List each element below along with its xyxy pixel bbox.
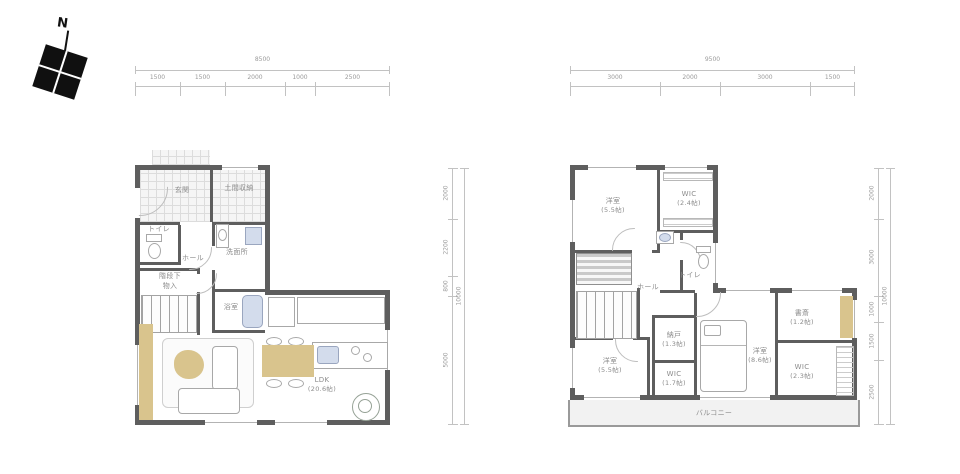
room-label-line: 物入 (159, 281, 181, 291)
tick (874, 168, 884, 169)
tick (874, 360, 884, 361)
dim-seg: 1000 (285, 74, 315, 81)
wall (215, 289, 265, 292)
dining-chair (266, 379, 282, 388)
toilet-tank (146, 234, 162, 242)
room-label-bedroom-nw: 洋室 (5.5帖) (601, 196, 625, 216)
kitchen-back-counter (297, 297, 385, 324)
wall (265, 290, 390, 295)
dim-seg: 1500 (180, 74, 225, 81)
wall (647, 340, 650, 395)
room-label-storage: 納戸 (1.3帖) (662, 330, 686, 350)
sofa (178, 388, 240, 414)
room-size: (8.6帖) (748, 356, 772, 365)
room-size: (2.3帖) (790, 372, 814, 381)
tick (570, 66, 571, 74)
door-opening (632, 250, 652, 253)
wall (178, 225, 181, 265)
dim-total: 10000 (882, 286, 889, 305)
wic-shelf (663, 172, 713, 181)
window (205, 420, 257, 425)
room-label-toilet: トイレ (679, 270, 701, 280)
tick (874, 219, 884, 220)
sofa (212, 346, 238, 390)
room-label-washroom: 洗面所 (226, 247, 248, 257)
dim-seg: 3000 (570, 74, 660, 81)
dim-seg: 1500 (869, 333, 876, 348)
wall (212, 330, 265, 333)
tick (874, 322, 884, 323)
dim-seg: 3000 (720, 74, 810, 81)
tick (285, 82, 286, 96)
room-label-genkan: 玄関 (175, 185, 190, 195)
wall (140, 262, 181, 265)
refrigerator (268, 297, 295, 327)
wall (652, 360, 697, 363)
room-size: (5.5帖) (598, 366, 622, 375)
toilet-bowl (698, 254, 709, 269)
dim-total: 9500 (570, 56, 855, 63)
toilet-bowl (148, 243, 161, 259)
dim-seg: 2000 (869, 185, 876, 200)
room-label-toilet: トイレ (148, 224, 170, 234)
compass-rose-icon (32, 44, 87, 99)
room-size: (2.4帖) (677, 199, 701, 208)
room-size: (1.7帖) (662, 379, 686, 388)
dim-line (464, 168, 465, 425)
room-size: (1.2帖) (790, 318, 814, 327)
dim-seg: 2000 (225, 74, 285, 81)
dim-seg: 2000 (443, 185, 450, 200)
tick (886, 424, 895, 425)
dining-table (262, 345, 314, 377)
room-label-line: WIC (677, 189, 701, 199)
window (570, 200, 575, 242)
tick (225, 82, 226, 96)
dim-seg: 1000 (869, 301, 876, 316)
window (713, 243, 718, 283)
wall (778, 340, 857, 343)
tick (460, 424, 469, 425)
tick (460, 168, 469, 169)
dim-line (570, 86, 855, 87)
dim-seg: 1500 (135, 74, 180, 81)
tick (874, 424, 884, 425)
dim-seg: 800 (443, 280, 450, 291)
wall (637, 288, 640, 340)
room-label-ldk: LDK (20.6帖) (308, 375, 336, 395)
room-label-wic-s: WIC (1.7帖) (662, 369, 686, 389)
dim-line (135, 86, 390, 87)
tick (448, 276, 458, 277)
coffee-table (174, 350, 204, 379)
room-label-doma-storage: 土間収納 (224, 183, 253, 193)
room-label-line: 書斎 (790, 308, 814, 318)
room-label-line: WIC (790, 362, 814, 372)
room-size: (5.5帖) (601, 206, 625, 215)
tick (854, 66, 855, 74)
room-label-line: 洋室 (598, 356, 622, 366)
room-label-hall: ホール (182, 253, 204, 263)
room-label-line: 階段下 (159, 271, 181, 281)
window (275, 420, 327, 425)
tick (389, 82, 390, 96)
tick (448, 168, 458, 169)
room-label-wic-e: WIC (2.3帖) (790, 362, 814, 382)
room-label-bedroom-se: 洋室 (8.6帖) (748, 346, 772, 366)
tick (660, 82, 661, 96)
wall (265, 165, 270, 295)
dining-chair (288, 379, 304, 388)
window (665, 165, 707, 170)
kitchen-sink (317, 346, 339, 364)
bathtub (242, 295, 263, 328)
vanity-basin (218, 229, 227, 241)
study-desk (840, 296, 853, 338)
window (588, 165, 636, 170)
room-size: (20.6帖) (308, 385, 336, 394)
wall (775, 293, 778, 395)
stove-burner (351, 346, 360, 355)
room-label-line: LDK (308, 375, 336, 385)
plant-icon (358, 399, 372, 413)
porch-tiles (152, 150, 210, 165)
dim-seg: 3000 (869, 249, 876, 264)
wall (210, 168, 213, 222)
tick (389, 66, 390, 74)
pillow (704, 325, 721, 336)
basin (659, 233, 671, 242)
room-label-bedroom-sw: 洋室 (5.5帖) (598, 356, 622, 376)
wall (652, 315, 655, 400)
room-label-line: 洋室 (601, 196, 625, 206)
dim-seg: 1500 (810, 74, 855, 81)
room-label-understairs: 階段下 物入 (159, 271, 181, 291)
dim-seg: 2500 (869, 384, 876, 399)
washing-machine (245, 227, 262, 245)
window (222, 165, 258, 170)
dim-line (570, 70, 855, 71)
room-label-hall: ホール (637, 282, 659, 292)
balcony-door (700, 395, 770, 400)
room-label-line: WIC (662, 369, 686, 379)
bed-fold-line (701, 345, 746, 346)
wic-shelf (663, 218, 713, 227)
room-label-line: 納戸 (662, 330, 686, 340)
stove-burner (363, 353, 372, 362)
compass-north-label: N (56, 15, 69, 31)
toilet-tank (696, 246, 711, 253)
dim-line (890, 168, 891, 425)
tick (810, 82, 811, 96)
window (792, 288, 842, 293)
room-label-study: 書斎 (1.2帖) (790, 308, 814, 328)
room-size: (1.3帖) (662, 340, 686, 349)
dim-seg: 5000 (443, 352, 450, 367)
tick (720, 82, 721, 96)
balcony-door (584, 395, 640, 400)
floorplan-canvas: N 8500 1500 1500 2000 1000 2500 2000 220… (0, 0, 960, 474)
tick (448, 424, 458, 425)
tick (886, 168, 895, 169)
window (570, 348, 575, 388)
window (726, 288, 770, 293)
dim-total: 8500 (135, 56, 390, 63)
tick (448, 219, 458, 220)
dim-total: 10000 (456, 286, 463, 305)
dim-seg: 2500 (315, 74, 390, 81)
tick (180, 82, 181, 96)
tick (135, 82, 136, 96)
dim-seg: 2200 (443, 239, 450, 254)
tick (570, 82, 571, 96)
tv-board (139, 324, 153, 420)
door-opening (212, 246, 215, 270)
tick (854, 82, 855, 96)
dim-line (135, 70, 390, 71)
closet (576, 253, 632, 285)
dim-seg: 2000 (660, 74, 720, 81)
wall (652, 315, 697, 318)
tick (315, 82, 316, 96)
stairs (576, 291, 637, 339)
wic-shelf (836, 346, 854, 396)
tick (135, 66, 136, 74)
room-label-wic-n: WIC (2.4帖) (677, 189, 701, 209)
room-label-balcony: バルコニー (696, 408, 732, 418)
room-label-line: 洋室 (748, 346, 772, 356)
wall (135, 420, 390, 425)
room-label-bath: 浴室 (224, 302, 239, 312)
